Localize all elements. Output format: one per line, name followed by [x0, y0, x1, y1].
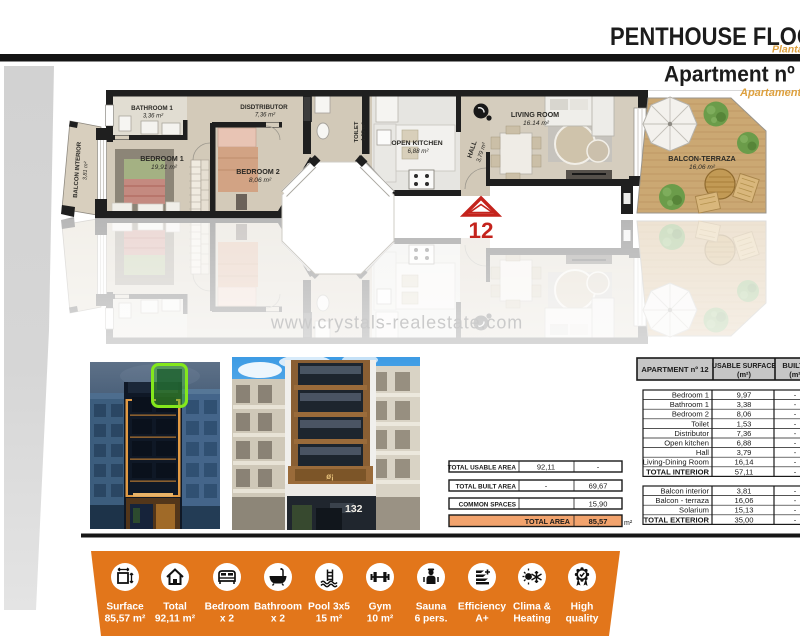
svg-text:Open kitchen: Open kitchen — [664, 439, 709, 448]
svg-text:Gym: Gym — [369, 602, 392, 613]
svg-text:Total: Total — [163, 602, 187, 613]
svg-text:(m²): (m²) — [737, 370, 751, 379]
svg-text:LIVING ROOM: LIVING ROOM — [511, 110, 559, 119]
svg-text:69,67: 69,67 — [589, 482, 608, 491]
svg-text:BEDROOM 1: BEDROOM 1 — [140, 154, 184, 163]
svg-text:3,79: 3,79 — [737, 448, 752, 457]
svg-text:TOTAL INTERIOR: TOTAL INTERIOR — [646, 467, 709, 476]
svg-text:12: 12 — [468, 218, 493, 243]
svg-text:85,57: 85,57 — [589, 517, 608, 526]
svg-text:quality: quality — [566, 614, 599, 625]
svg-text:15 m²: 15 m² — [316, 614, 343, 625]
svg-text:Planta Atico: Planta Atico — [772, 44, 800, 56]
svg-text:TOTAL EXTERIOR: TOTAL EXTERIOR — [644, 515, 710, 524]
svg-text:Heating: Heating — [513, 614, 550, 625]
svg-text:19,91 m²: 19,91 m² — [151, 164, 178, 171]
svg-text:92,11: 92,11 — [537, 463, 555, 472]
svg-text:x 2: x 2 — [220, 614, 234, 625]
svg-text:6,88: 6,88 — [737, 439, 752, 448]
svg-text:15,13: 15,13 — [734, 506, 753, 515]
svg-text:Bathroom 1: Bathroom 1 — [670, 400, 709, 409]
svg-text:BATHROOM 1: BATHROOM 1 — [131, 105, 173, 112]
svg-text:Distributor: Distributor — [674, 429, 709, 438]
svg-text:(m²: (m² — [789, 370, 800, 379]
svg-text:16,06 m²: 16,06 m² — [689, 164, 716, 171]
svg-text:A+: A+ — [475, 614, 488, 625]
svg-text:16.14 m²: 16.14 m² — [523, 120, 550, 127]
svg-text:7,36 m²: 7,36 m² — [255, 113, 276, 119]
svg-text:Bathroom: Bathroom — [254, 602, 302, 613]
svg-text:BEDROOM 2: BEDROOM 2 — [236, 167, 280, 176]
svg-text:35,00: 35,00 — [734, 515, 753, 524]
svg-text:Balcon - terraza: Balcon - terraza — [655, 496, 709, 505]
svg-text:15,90: 15,90 — [589, 500, 608, 509]
svg-text:Toilet: Toilet — [691, 419, 710, 428]
svg-text:Efficiency: Efficiency — [458, 602, 506, 613]
svg-text:Surface: Surface — [106, 602, 144, 613]
svg-text:TOILET: TOILET — [354, 121, 360, 142]
svg-text:DISDTRIBUTOR: DISDTRIBUTOR — [240, 104, 288, 111]
svg-text:3,38: 3,38 — [737, 400, 752, 409]
svg-text:Solarium: Solarium — [679, 506, 709, 515]
svg-text:132: 132 — [345, 503, 363, 515]
svg-text:Bedroom: Bedroom — [205, 602, 250, 613]
svg-text:16,14: 16,14 — [734, 458, 753, 467]
svg-text:COMMON SPACES: COMMON SPACES — [459, 502, 517, 509]
svg-text:Living-Dining Room: Living-Dining Room — [643, 458, 709, 467]
svg-text:BALCON-TERRAZA: BALCON-TERRAZA — [668, 154, 735, 163]
svg-text:BUILT: BUILT — [782, 361, 800, 370]
svg-text:1,53: 1,53 — [737, 419, 752, 428]
svg-text:8,06 m²: 8,06 m² — [249, 177, 272, 184]
svg-text:Balcon interior: Balcon interior — [660, 487, 709, 496]
svg-text:ø¡: ø¡ — [326, 472, 334, 481]
svg-text:Apartamento n: Apartamento n — [739, 87, 800, 99]
svg-text:85,57 m²: 85,57 m² — [105, 614, 146, 625]
svg-text:Bedroom 1: Bedroom 1 — [672, 391, 709, 400]
svg-text:Sauna: Sauna — [416, 602, 447, 613]
svg-text:3,36 m²: 3,36 m² — [143, 114, 164, 120]
svg-text:USABLE SURFACE: USABLE SURFACE — [712, 363, 777, 370]
svg-text:3,81: 3,81 — [737, 487, 752, 496]
svg-text:Hall: Hall — [696, 448, 709, 457]
svg-text:6 pers.: 6 pers. — [415, 614, 448, 625]
svg-text:www.crystals-realestate.com: www.crystals-realestate.com — [270, 313, 523, 333]
svg-text:Bedroom 2: Bedroom 2 — [672, 410, 709, 419]
svg-text:Apartment nº 12: Apartment nº 12 — [664, 61, 800, 87]
svg-text:High: High — [571, 602, 594, 613]
svg-text:m²: m² — [624, 520, 633, 527]
svg-text:9,97: 9,97 — [737, 391, 752, 400]
svg-text:92,11 m²: 92,11 m² — [155, 614, 196, 625]
svg-text:TOTAL AREA: TOTAL AREA — [525, 517, 570, 526]
svg-text:16,06: 16,06 — [734, 496, 753, 505]
svg-text:APARTMENT nº 12: APARTMENT nº 12 — [641, 365, 708, 374]
svg-text:TOTAL USABLE AREA: TOTAL USABLE AREA — [448, 465, 517, 472]
svg-text:Pool 3x5: Pool 3x5 — [308, 602, 350, 613]
svg-text:57,11: 57,11 — [735, 467, 753, 476]
svg-text:7,36: 7,36 — [737, 429, 752, 438]
svg-text:6,88 m²: 6,88 m² — [408, 148, 430, 155]
svg-text:TOTAL BUILT AREA: TOTAL BUILT AREA — [456, 484, 517, 491]
svg-text:1,53 m²: 1,53 m² — [361, 123, 367, 141]
svg-text:8,06: 8,06 — [737, 410, 752, 419]
svg-text:OPEN KITCHEN: OPEN KITCHEN — [391, 140, 442, 147]
svg-text:10 m²: 10 m² — [367, 614, 394, 625]
svg-text:Clima &: Clima & — [513, 602, 552, 613]
svg-text:x 2: x 2 — [271, 614, 285, 625]
